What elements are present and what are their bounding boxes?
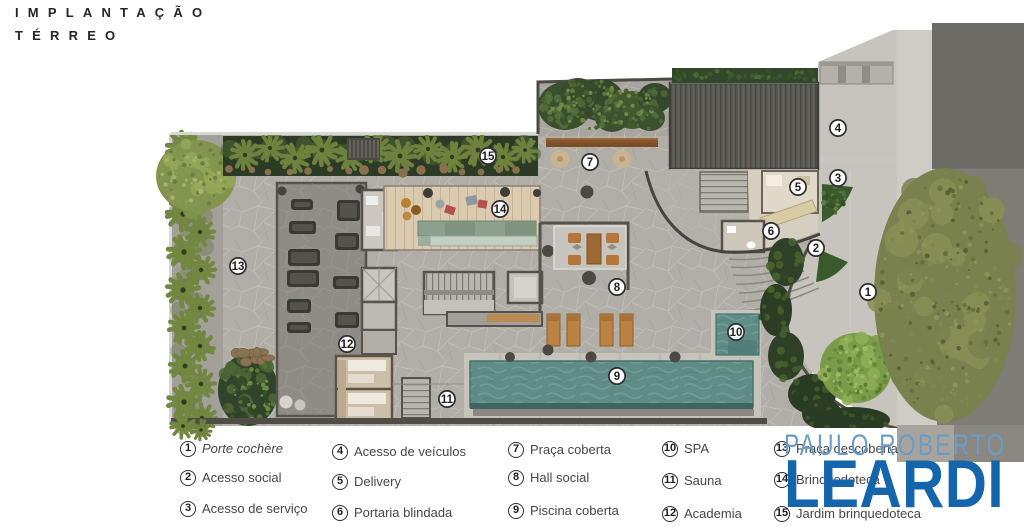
svg-text:11: 11: [441, 394, 454, 406]
svg-text:9: 9: [614, 371, 620, 383]
svg-text:2: 2: [813, 243, 819, 255]
svg-text:1: 1: [865, 287, 872, 299]
svg-text:5: 5: [795, 182, 802, 194]
svg-text:15: 15: [482, 151, 495, 163]
svg-text:12: 12: [341, 339, 354, 351]
svg-text:6: 6: [768, 226, 774, 238]
svg-text:3: 3: [835, 173, 841, 185]
svg-text:7: 7: [587, 157, 593, 169]
svg-text:8: 8: [614, 282, 621, 294]
svg-text:4: 4: [835, 123, 842, 135]
svg-text:13: 13: [232, 261, 245, 273]
svg-text:14: 14: [494, 204, 507, 216]
svg-text:10: 10: [730, 327, 743, 339]
